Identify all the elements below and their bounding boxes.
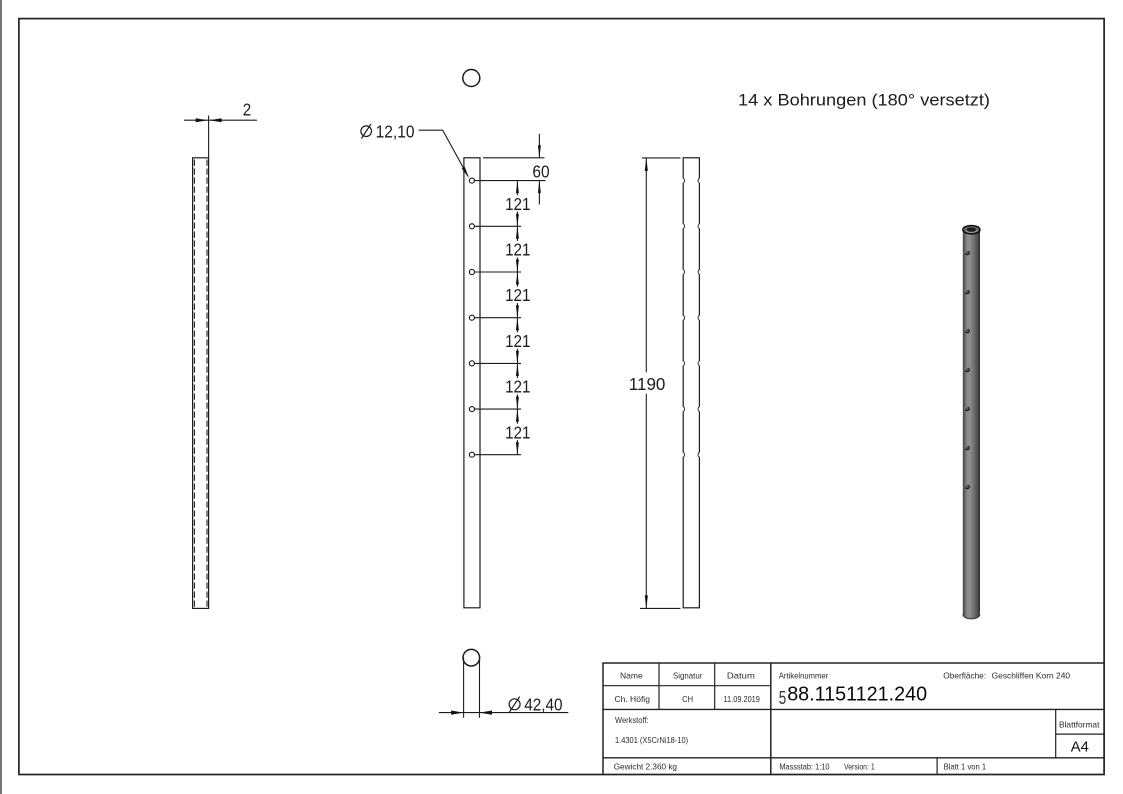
svg-text:42,40: 42,40 [524,694,563,714]
svg-text:121: 121 [505,377,530,397]
svg-text:1190: 1190 [629,374,666,394]
svg-text:Werkstoff:: Werkstoff: [615,716,649,725]
svg-text:Blattformat: Blattformat [1059,720,1100,730]
svg-text:Massstab: 1:10: Massstab: 1:10 [779,761,829,771]
svg-text:Version: 1: Version: 1 [844,761,875,771]
svg-text:14 x Bohrungen (180° versetzt): 14 x Bohrungen (180° versetzt) [738,90,990,109]
svg-text:Datum: Datum [727,671,755,681]
svg-text:Name: Name [620,671,643,681]
svg-text:88.1151121.240: 88.1151121.240 [787,682,927,705]
svg-text:2: 2 [243,100,251,120]
svg-text:Blatt 1 von 1: Blatt 1 von 1 [944,761,987,771]
svg-text:Geschliffen Korn 240: Geschliffen Korn 240 [992,671,1071,681]
svg-text:A4: A4 [1071,739,1089,755]
svg-text:121: 121 [505,194,530,214]
svg-text:60: 60 [532,161,549,181]
svg-text:121: 121 [505,331,530,351]
svg-text:Ch. Höfig: Ch. Höfig [614,694,650,704]
svg-text:5: 5 [779,688,787,708]
svg-text:Gewicht 2.360 kg: Gewicht 2.360 kg [614,761,678,771]
svg-text:11.09.2019: 11.09.2019 [724,694,761,704]
svg-text:121: 121 [505,285,530,305]
svg-text:1.4301 (X5CrNi18-10): 1.4301 (X5CrNi18-10) [615,736,688,745]
svg-text:CH: CH [682,694,693,704]
svg-text:Artikelnummer: Artikelnummer [779,671,829,681]
svg-text:121: 121 [505,240,530,260]
svg-text:12,10: 12,10 [376,121,415,141]
svg-text:121: 121 [505,422,530,442]
svg-text:Signatur: Signatur [673,671,702,681]
svg-text:Oberfläche:: Oberfläche: [943,671,986,681]
